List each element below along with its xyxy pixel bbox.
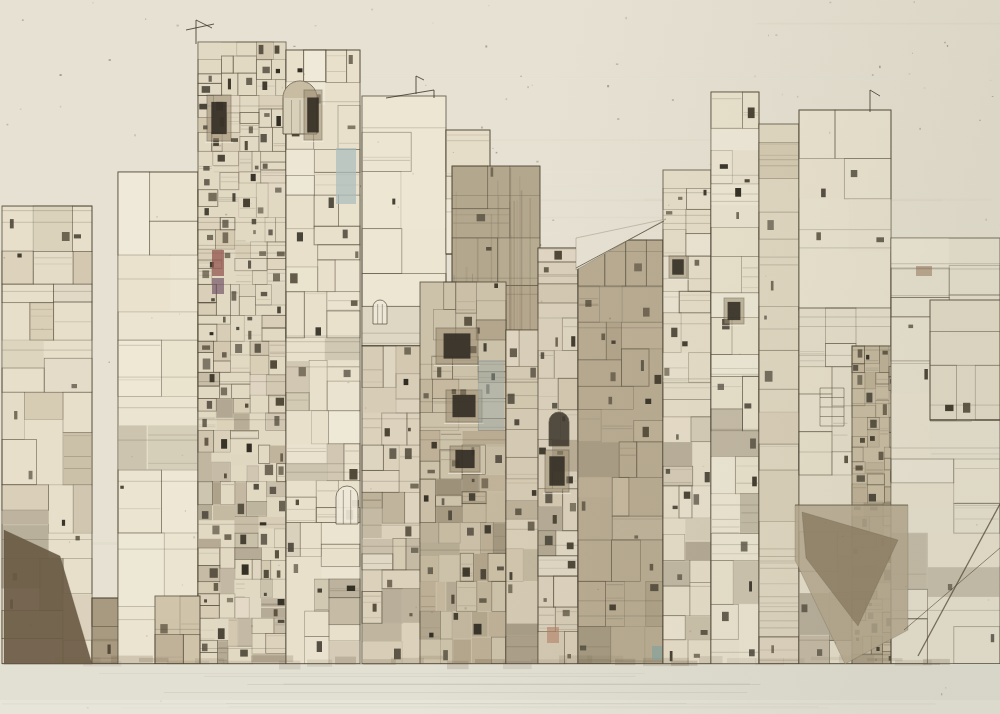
tint-overlay [0, 0, 1000, 714]
artwork-canvas [0, 0, 1000, 714]
architectural-collage-artwork [0, 0, 1000, 714]
